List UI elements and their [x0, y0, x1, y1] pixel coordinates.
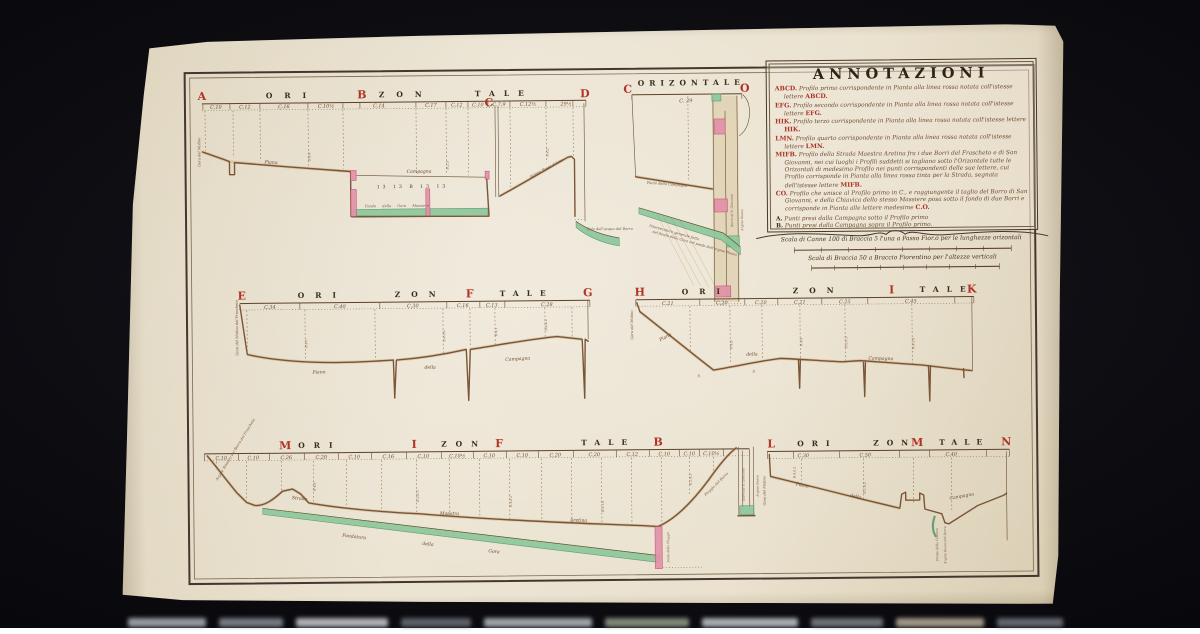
- profile-letter: B: [357, 88, 366, 101]
- svg-text:Campagna: Campagna: [505, 355, 531, 363]
- water-channel: [263, 505, 660, 567]
- svg-text:C.16: C.16: [382, 454, 394, 460]
- svg-text:Fondo della Gora Massiere: Fondo della Gora Massiere: [364, 204, 429, 209]
- svg-text:B.4.6: B.4.6: [307, 152, 311, 161]
- svg-text:Piano: Piano: [311, 369, 326, 376]
- scale-horizontal-label: Scala di Canne 100 di Braccia 5 l'una a …: [781, 234, 1022, 243]
- svg-text:Fondatura: Fondatura: [341, 533, 367, 542]
- wall-pink: [655, 527, 662, 569]
- svg-text:C.10½: C.10½: [318, 103, 335, 110]
- profile-letter: M: [279, 439, 291, 452]
- filmstrip-blob: [401, 618, 471, 627]
- annotation-entry: MIFB. Profilo della Strada Maestra Areti…: [775, 149, 1028, 190]
- svg-text:C.10: C.10: [348, 454, 360, 460]
- svg-text:ORI: ORI: [797, 439, 837, 448]
- svg-text:C.21: C.21: [794, 300, 806, 306]
- svg-text:Borro di S. Giovanni: Borro di S. Giovanni: [741, 468, 745, 502]
- annotations-panel: ANNOTAZIONI ABCD. Profilo primo corrispo…: [766, 58, 1039, 233]
- svg-text:Gora del Molino: Gora del Molino: [197, 137, 201, 167]
- svg-text:ZON: ZON: [873, 438, 916, 447]
- svg-text:C.20: C.20: [716, 300, 728, 306]
- scale-horizontal-bar: [794, 248, 1011, 250]
- svg-text:C.20: C.20: [315, 455, 327, 461]
- svg-text:B.4.1.6: B.4.1.6: [601, 501, 605, 514]
- svg-text:Gora del Molino del Frascheto: Gora del Molino del Frascheto: [235, 299, 240, 355]
- svg-text:Gora del Molino: Gora del Molino: [630, 310, 634, 340]
- profile-letter: A: [196, 90, 206, 103]
- scale-vertical-label: Scala di Braccia 50 a Braccio Fiorentino…: [808, 253, 997, 262]
- svg-text:ORI: ORI: [298, 441, 341, 450]
- profile-letter: G: [583, 286, 593, 299]
- svg-text:Argine Rosso: Argine Rosso: [740, 209, 744, 231]
- svg-text:C.10: C.10: [247, 455, 259, 461]
- svg-text:ORI: ORI: [298, 291, 347, 300]
- svg-text:B.: B.: [697, 374, 701, 378]
- svg-text:ZON: ZON: [441, 439, 487, 448]
- svg-text:B.4.6.2: B.4.6.2: [509, 495, 513, 508]
- svg-text:C.50: C.50: [859, 453, 871, 459]
- profile-hik: H ORI ZON I TALE K C.21 C.20 C.20 C.21 C…: [630, 282, 978, 403]
- svg-text:C.45: C.45: [905, 299, 917, 305]
- profile-letter: I: [889, 283, 894, 296]
- svg-text:della: della: [849, 493, 862, 501]
- svg-text:Campagna: Campagna: [949, 491, 975, 502]
- profile-letter: L: [767, 437, 775, 450]
- profile-letter: H: [634, 286, 645, 299]
- svg-text:ZON: ZON: [793, 286, 845, 295]
- svg-text:TALE: TALE: [581, 438, 635, 448]
- svg-text:C.7.9: C.7.9: [492, 102, 506, 108]
- entry-key: ABCD.: [775, 85, 797, 92]
- svg-text:Gora: Gora: [488, 548, 500, 555]
- profile-letter: D: [580, 87, 590, 100]
- profile-letter: O: [740, 82, 750, 95]
- profile-efg: E ORI ZON F TALE G C.34 C.40 C.30 C.16 C…: [235, 286, 594, 402]
- filmstrip-blob: [219, 618, 283, 627]
- svg-text:B.2.0.2: B.2.0.2: [844, 336, 848, 349]
- svg-text:C.12½: C.12½: [520, 101, 537, 108]
- terrain-label: Piano: [263, 159, 278, 166]
- svg-text:B.4.6: B.4.6: [313, 482, 317, 491]
- svg-text:B.4.0.2: B.4.0.2: [792, 467, 796, 480]
- scale-bars: Scala di Canne 100 di Braccia 5 l'una a …: [756, 229, 1048, 272]
- svg-text:della: della: [422, 541, 434, 548]
- filmstrip-blob: [997, 618, 1063, 627]
- photo-filmstrip: [128, 618, 1074, 627]
- orizontale-word: ORIZONTALE: [638, 78, 745, 88]
- annotation-point: B. Punti presi dalla Campagna sopra il P…: [776, 221, 1029, 229]
- svg-text:Fondo della Colonna: Fondo della Colonna: [935, 528, 939, 562]
- filmstrip-blob: [296, 618, 388, 627]
- profile-letter: C: [623, 83, 632, 96]
- svg-text:B.4.2.6: B.4.2.6: [911, 338, 915, 351]
- svg-text:C.25: C.25: [839, 299, 851, 305]
- svg-text:B.4.0½: B.4.0½: [441, 330, 446, 343]
- svg-text:Aretina: Aretina: [569, 517, 588, 523]
- svg-text:C.10: C.10: [516, 453, 528, 459]
- svg-text:C.14: C.14: [373, 103, 385, 109]
- svg-text:C.10½: C.10½: [703, 450, 720, 457]
- svg-text:C.17: C.17: [425, 103, 437, 109]
- profile-co: ORIZONTALE C O C. 29 Piano della Campagn…: [623, 78, 752, 305]
- filmstrip-blob: [702, 618, 798, 627]
- profile-letter: F: [466, 287, 474, 300]
- svg-text:C.21: C.21: [662, 301, 674, 307]
- svg-text:C.30: C.30: [407, 303, 419, 309]
- annotations-title: ANNOTAZIONI: [775, 64, 1028, 83]
- scale-vertical-bar: [812, 266, 1000, 268]
- svg-text:C.40: C.40: [334, 304, 346, 310]
- svg-text:B.2.6.2: B.2.6.2: [863, 482, 867, 495]
- svg-text:C.16: C.16: [278, 104, 290, 110]
- profile-letter: N: [1001, 435, 1011, 448]
- svg-text:C.10: C.10: [683, 451, 695, 457]
- svg-text:C.10: C.10: [417, 454, 429, 460]
- svg-text:C.28: C.28: [541, 302, 553, 308]
- svg-text:Maestra: Maestra: [439, 511, 460, 518]
- svg-text:Gora del Molino: Gora del Molino: [762, 475, 766, 505]
- profile-letter: I: [412, 438, 417, 451]
- svg-text:B.4.6.2: B.4.6.2: [544, 319, 548, 332]
- svg-text:C.40: C.40: [945, 452, 957, 458]
- svg-text:Pelo dell'acqua del Borro: Pelo dell'acqua del Borro: [586, 227, 634, 231]
- svg-text:ZON: ZON: [379, 90, 434, 100]
- filmstrip-blob: [128, 618, 206, 627]
- annotations-inner-border: ANNOTAZIONI ABCD. Profilo primo corrispo…: [769, 61, 1036, 230]
- profile-mifb: M ORI I ZON F TALE B C.10 C.10 C.26 C.20…: [204, 412, 760, 573]
- tick-label: C.10: [210, 105, 222, 111]
- survey-verticals: [205, 107, 574, 190]
- svg-text:C.26: C.26: [280, 455, 292, 461]
- svg-text:Argine Rosso: Argine Rosso: [755, 475, 759, 497]
- svg-text:ZON: ZON: [395, 290, 447, 299]
- svg-text:B.2.4.2: B.2.4.2: [688, 474, 692, 487]
- svg-text:Scalo della Piaggia: Scalo della Piaggia: [666, 532, 670, 563]
- wall-pink: [351, 170, 357, 180]
- ground-line: [637, 300, 972, 374]
- svg-text:C.10½: C.10½: [449, 452, 466, 459]
- svg-text:C.12: C.12: [451, 102, 463, 108]
- water-pool: [576, 221, 619, 246]
- spike-c: [495, 106, 499, 197]
- svg-text:B.4.2: B.4.2: [545, 148, 549, 157]
- svg-text:B.: B.: [751, 370, 755, 374]
- profile-letter: K: [967, 282, 977, 295]
- svg-text:Strada: Strada: [292, 495, 308, 502]
- svg-text:B.4.0: B.4.0: [304, 339, 308, 348]
- svg-text:C.20: C.20: [549, 452, 561, 458]
- profile-letter: F: [495, 437, 503, 450]
- svg-text:TALE: TALE: [920, 285, 974, 295]
- orizontale-word: ORI: [266, 91, 318, 101]
- profile-letter: B: [653, 436, 662, 449]
- profile-abcd: A ORI B ZON TALE D C C.10 C.12 C.16 C.10…: [196, 86, 633, 250]
- entry-tail: ABCD.: [805, 93, 827, 100]
- sheet-tilt-wrapper: A ORI B ZON TALE D C C.10 C.12 C.16 C.10…: [0, 0, 1200, 634]
- svg-text:B.4.8: B.4.8: [799, 338, 803, 347]
- filmstrip-blob: [896, 618, 984, 627]
- annotation-entry: CO. Profilo che unisce al Profilo primo …: [776, 188, 1029, 214]
- svg-text:B.2.3: B.2.3: [445, 161, 449, 170]
- svg-text:Campagna: Campagna: [407, 169, 432, 175]
- svg-text:ORI: ORI: [682, 287, 731, 296]
- svg-text:B.4.1: B.4.1: [494, 328, 498, 337]
- tick-label: C. 29: [679, 98, 693, 104]
- photo-background: A ORI B ZON TALE D C C.10 C.12 C.16 C.10…: [0, 0, 1200, 628]
- filmstrip-blob: [811, 618, 883, 627]
- svg-text:C.20: C.20: [755, 300, 767, 306]
- svg-text:B.4.6: B.4.6: [729, 340, 733, 349]
- svg-text:B.2.6.3: B.2.6.3: [416, 490, 420, 503]
- svg-text:TALE: TALE: [939, 437, 989, 446]
- svg-text:della: della: [424, 365, 436, 371]
- profile-lmn: L ORI ZON M TALE N C.30 C.50 C.40 Piano …: [762, 435, 1012, 566]
- filmstrip-blob: [605, 618, 689, 627]
- svg-text:C.16: C.16: [457, 303, 469, 309]
- ground-line: [240, 302, 589, 402]
- svg-text:C.10: C.10: [472, 102, 484, 108]
- svg-text:Piano della Campagna: Piano della Campagna: [646, 181, 688, 188]
- svg-text:C.13: C.13: [486, 303, 498, 309]
- svg-text:29½: 29½: [559, 100, 571, 107]
- svg-text:Argine Rosso d'Arno: Argine Rosso d'Arno: [528, 157, 565, 179]
- svg-text:Piano: Piano: [794, 481, 809, 490]
- filmstrip-blob: [484, 618, 592, 627]
- svg-text:C.10: C.10: [658, 451, 670, 457]
- svg-text:C.34: C.34: [264, 305, 276, 311]
- profile-letter: M: [911, 436, 923, 449]
- svg-text:C.12: C.12: [239, 104, 251, 110]
- svg-text:Borro di S. Giovanni: Borro di S. Giovanni: [730, 194, 734, 228]
- svg-text:Argine Rosso del Borro: Argine Rosso del Borro: [943, 526, 947, 565]
- svg-text:C.10: C.10: [483, 453, 495, 459]
- svg-text:C.30: C.30: [797, 453, 809, 459]
- annotation-points-list: A. Punti presi dalla Campagna sotto il P…: [776, 214, 1029, 230]
- svg-text:C.12: C.12: [626, 452, 638, 458]
- svg-text:Campagna: Campagna: [868, 356, 893, 363]
- svg-text:Argine Sinistro del Borro del: Argine Sinistro del Borro del Frascheto: [214, 417, 256, 482]
- depth-figures: 13 13 B 13 13: [377, 184, 449, 191]
- svg-text:C.20: C.20: [588, 452, 600, 458]
- svg-text:della: della: [746, 352, 758, 358]
- svg-text:TALE: TALE: [500, 289, 554, 299]
